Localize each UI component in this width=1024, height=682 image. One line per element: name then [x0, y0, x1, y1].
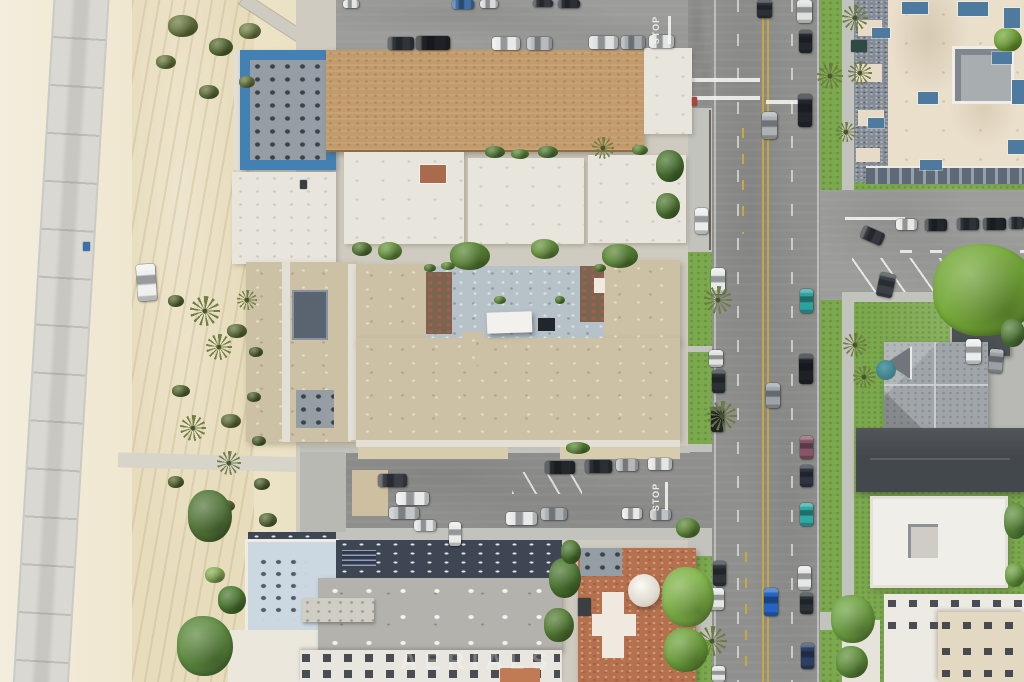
tree [450, 242, 490, 270]
car [709, 350, 723, 367]
tree [656, 193, 680, 219]
palm-tree [237, 290, 257, 310]
tree [994, 28, 1022, 52]
tree [188, 490, 232, 542]
stop-road-marking-south: STOP [651, 482, 661, 512]
balcony-accent [1008, 140, 1024, 154]
palm-tree [836, 122, 856, 142]
tree [172, 385, 190, 397]
tree [632, 145, 648, 155]
car [801, 643, 814, 669]
tree [441, 262, 455, 270]
street-object [300, 180, 307, 189]
car [800, 465, 813, 487]
street-object [578, 598, 591, 616]
palm-tree [190, 296, 220, 326]
car [799, 30, 812, 53]
tree [836, 646, 868, 678]
car [712, 370, 725, 393]
balcony-accent [1004, 8, 1020, 28]
tree [199, 85, 219, 99]
car [988, 348, 1004, 373]
stop-limit-line [665, 482, 668, 510]
tree [1004, 503, 1024, 539]
palm-tree [217, 451, 241, 475]
street-object [83, 242, 90, 251]
tree [168, 295, 184, 307]
car [388, 37, 414, 50]
car [389, 507, 419, 519]
tree [1005, 563, 1024, 587]
tree [831, 595, 875, 643]
tree [656, 150, 684, 182]
tree [227, 324, 247, 338]
scene-objects [0, 0, 1024, 682]
tree [1001, 319, 1024, 347]
balcony-accent [872, 28, 890, 38]
tree [602, 244, 638, 268]
car [396, 492, 429, 505]
tree [511, 149, 529, 159]
car [925, 219, 947, 231]
tree [218, 586, 246, 614]
palm-tree [817, 63, 843, 89]
tree [549, 558, 581, 598]
palm-tree [707, 401, 737, 431]
car [800, 503, 813, 526]
car [983, 218, 1006, 230]
balcony-accent [1012, 80, 1024, 104]
car [545, 461, 575, 474]
tree [662, 567, 714, 627]
palm-tree [843, 333, 867, 357]
car [541, 508, 567, 520]
car [713, 561, 726, 586]
balcony-accent [920, 160, 942, 170]
car [966, 339, 981, 364]
palm-tree [848, 61, 872, 85]
tree [485, 146, 505, 158]
tree [561, 540, 581, 564]
tree [544, 608, 574, 642]
car [766, 383, 780, 408]
aerial-photo: STOP STOP AERIALS [0, 0, 1024, 682]
tree [424, 264, 436, 272]
tree [494, 296, 506, 304]
tree [378, 242, 402, 260]
car [616, 459, 638, 471]
car [859, 225, 885, 246]
car [506, 512, 537, 525]
car [414, 520, 436, 531]
balcony-accent [992, 52, 1012, 64]
stop-road-marking-north: STOP [651, 15, 661, 45]
car [136, 263, 158, 301]
tree [252, 436, 266, 446]
street-object [851, 40, 867, 52]
tree [538, 146, 558, 158]
tree [664, 628, 708, 672]
car [799, 354, 813, 384]
car [957, 218, 979, 230]
car [695, 208, 708, 234]
tree [205, 567, 225, 583]
tree [239, 23, 261, 39]
car [343, 0, 359, 8]
palm-tree [853, 366, 875, 388]
balcony-accent [868, 118, 884, 128]
tree [221, 414, 241, 428]
car [378, 474, 407, 487]
street-object [692, 97, 697, 106]
tree [247, 392, 261, 402]
car [416, 36, 450, 50]
tree [566, 442, 590, 454]
car [798, 566, 811, 590]
car [452, 0, 474, 9]
car [589, 36, 618, 49]
tree [249, 347, 263, 357]
car [527, 37, 552, 50]
tree [254, 478, 270, 490]
tree [177, 616, 233, 676]
tree [352, 242, 372, 256]
car [622, 508, 642, 519]
palm-tree [180, 415, 206, 441]
car [1009, 217, 1024, 229]
car [896, 219, 917, 230]
car [558, 0, 580, 8]
car [648, 458, 672, 470]
car [762, 112, 777, 139]
car [800, 436, 813, 459]
car [533, 0, 553, 7]
tree [676, 518, 700, 538]
car [800, 289, 813, 313]
stop-limit-line [668, 16, 671, 44]
car [480, 0, 498, 8]
car [876, 272, 897, 299]
palm-tree [842, 5, 868, 31]
car [621, 36, 645, 49]
tree [168, 476, 184, 488]
palm-tree [704, 286, 732, 314]
tree [168, 15, 198, 37]
tree [259, 513, 277, 527]
tree [555, 296, 565, 304]
car [800, 593, 813, 614]
balcony-accent [958, 2, 988, 16]
car [712, 666, 725, 682]
car [797, 0, 812, 23]
photo-watermark: AERIALS [400, 648, 554, 676]
car [798, 94, 812, 127]
car [585, 460, 612, 473]
tree [209, 38, 233, 56]
palm-tree [592, 137, 614, 159]
tree [239, 76, 255, 88]
palm-tree [206, 334, 232, 360]
car [492, 37, 520, 50]
balcony-accent [918, 92, 938, 104]
car [764, 588, 778, 616]
car [449, 522, 461, 546]
tree [531, 239, 559, 259]
car [757, 0, 772, 18]
balcony-accent [902, 2, 928, 14]
tree [156, 55, 176, 69]
tree [594, 264, 606, 272]
